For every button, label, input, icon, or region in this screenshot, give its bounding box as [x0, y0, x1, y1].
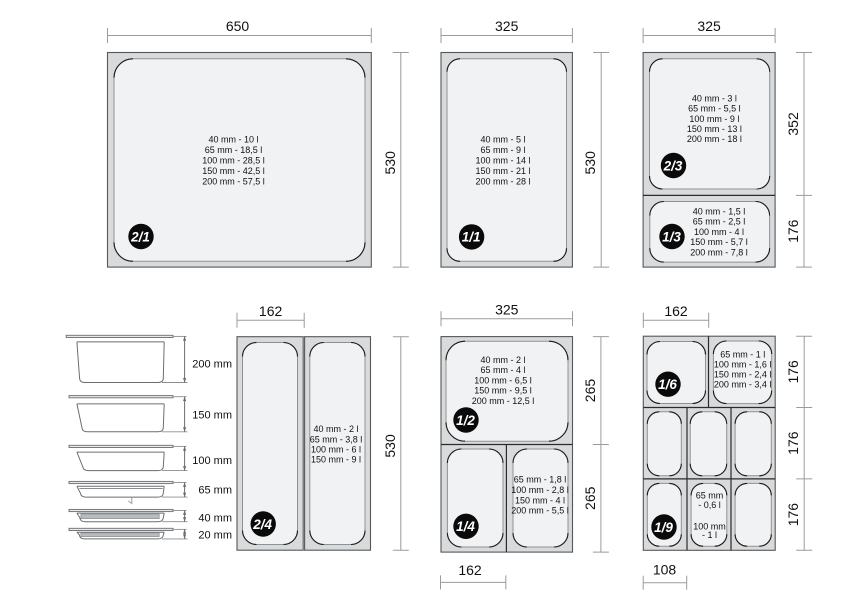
- svg-text:530: 530: [582, 151, 598, 175]
- svg-text:176: 176: [785, 219, 801, 243]
- svg-text:150 mm - 5,7 l: 150 mm - 5,7 l: [690, 237, 748, 247]
- svg-text:150 mm - 2,4 l: 150 mm - 2,4 l: [714, 370, 772, 380]
- svg-text:40 mm - 2 l: 40 mm - 2 l: [480, 355, 525, 365]
- svg-text:100 mm - 28,5 l: 100 mm - 28,5 l: [202, 155, 265, 165]
- svg-text:176: 176: [785, 503, 801, 527]
- svg-text:150 mm - 9,5 l: 150 mm - 9,5 l: [474, 386, 532, 396]
- svg-text:65 mm - 9 l: 65 mm - 9 l: [480, 145, 525, 155]
- svg-text:1/6: 1/6: [658, 377, 677, 392]
- svg-text:65 mm - 4 l: 65 mm - 4 l: [480, 365, 525, 375]
- svg-text:530: 530: [382, 434, 398, 458]
- svg-text:108: 108: [653, 561, 677, 577]
- svg-text:530: 530: [382, 151, 398, 175]
- svg-text:162: 162: [458, 562, 482, 578]
- svg-text:1/9: 1/9: [654, 520, 673, 535]
- svg-text:2/3: 2/3: [663, 158, 683, 173]
- svg-text:100 mm - 2,8 l: 100 mm - 2,8 l: [511, 485, 569, 495]
- svg-text:150 mm - 9 l: 150 mm - 9 l: [311, 455, 361, 465]
- svg-text:100 mm - 6 l: 100 mm - 6 l: [311, 445, 361, 455]
- svg-text:352: 352: [785, 112, 801, 136]
- svg-text:20 mm: 20 mm: [198, 529, 232, 541]
- svg-text:150 mm - 42,5 l: 150 mm - 42,5 l: [202, 166, 265, 176]
- svg-text:200 mm - 28 l: 200 mm - 28 l: [475, 176, 530, 186]
- svg-text:1/4: 1/4: [456, 519, 475, 534]
- svg-text:100 mm - 6,5 l: 100 mm - 6,5 l: [474, 375, 532, 385]
- svg-text:325: 325: [697, 18, 721, 34]
- svg-text:65 mm - 18,5 l: 65 mm - 18,5 l: [205, 145, 263, 155]
- svg-text:150 mm - 13 l: 150 mm - 13 l: [687, 124, 742, 134]
- svg-text:65 mm - 3,8 l: 65 mm - 3,8 l: [310, 434, 363, 444]
- svg-text:162: 162: [664, 303, 688, 319]
- svg-text:1/2: 1/2: [456, 413, 475, 428]
- svg-text:200 mm - 5,5 l: 200 mm - 5,5 l: [511, 506, 569, 516]
- svg-text:40 mm - 10 l: 40 mm - 10 l: [208, 134, 258, 144]
- svg-text:40 mm - 1,5 l: 40 mm - 1,5 l: [693, 206, 746, 216]
- svg-text:- 0,6 l: - 0,6 l: [698, 500, 721, 510]
- svg-text:1/1: 1/1: [462, 230, 481, 245]
- svg-text:65 mm - 2,5 l: 65 mm - 2,5 l: [693, 217, 746, 227]
- svg-text:40 mm - 3 l: 40 mm - 3 l: [692, 94, 737, 104]
- svg-text:100 mm - 14 l: 100 mm - 14 l: [475, 155, 530, 165]
- svg-text:150 mm - 21 l: 150 mm - 21 l: [475, 166, 530, 176]
- svg-text:1/3: 1/3: [662, 229, 681, 244]
- svg-text:2/4: 2/4: [252, 517, 272, 532]
- svg-text:65 mm - 1 l: 65 mm - 1 l: [720, 350, 765, 360]
- svg-text:650: 650: [226, 18, 250, 34]
- svg-text:2/1: 2/1: [130, 229, 150, 244]
- svg-text:325: 325: [495, 18, 519, 34]
- svg-text:40 mm - 5 l: 40 mm - 5 l: [480, 134, 525, 144]
- svg-text:200 mm - 7,8 l: 200 mm - 7,8 l: [690, 248, 748, 258]
- svg-text:176: 176: [785, 360, 801, 384]
- svg-text:65 mm - 1,8 l: 65 mm - 1,8 l: [514, 475, 567, 485]
- svg-text:- 1 l: - 1 l: [702, 530, 717, 540]
- svg-text:200 mm: 200 mm: [192, 358, 232, 370]
- svg-text:65 mm: 65 mm: [198, 484, 232, 496]
- svg-text:265: 265: [582, 379, 598, 403]
- svg-text:200 mm - 57,5 l: 200 mm - 57,5 l: [202, 176, 265, 186]
- svg-text:150 mm: 150 mm: [192, 409, 232, 421]
- svg-text:325: 325: [495, 301, 519, 317]
- svg-text:65 mm - 5,5 l: 65 mm - 5,5 l: [688, 104, 741, 114]
- svg-text:200 mm - 3,4 l: 200 mm - 3,4 l: [714, 380, 772, 390]
- svg-text:176: 176: [785, 431, 801, 455]
- svg-text:40 mm - 2 l: 40 mm - 2 l: [313, 424, 358, 434]
- svg-text:100 mm: 100 mm: [192, 455, 232, 467]
- svg-text:200 mm - 12,5 l: 200 mm - 12,5 l: [472, 396, 535, 406]
- svg-text:200 mm - 18 l: 200 mm - 18 l: [687, 134, 742, 144]
- svg-text:65 mm: 65 mm: [696, 490, 724, 500]
- svg-text:150 mm - 4 l: 150 mm - 4 l: [515, 495, 565, 505]
- svg-text:40 mm: 40 mm: [198, 512, 232, 524]
- svg-text:100 mm - 9 l: 100 mm - 9 l: [689, 114, 739, 124]
- svg-text:162: 162: [259, 303, 283, 319]
- svg-text:100 mm - 4 l: 100 mm - 4 l: [694, 227, 744, 237]
- svg-text:100 mm - 1,6 l: 100 mm - 1,6 l: [714, 360, 772, 370]
- svg-text:265: 265: [582, 486, 598, 510]
